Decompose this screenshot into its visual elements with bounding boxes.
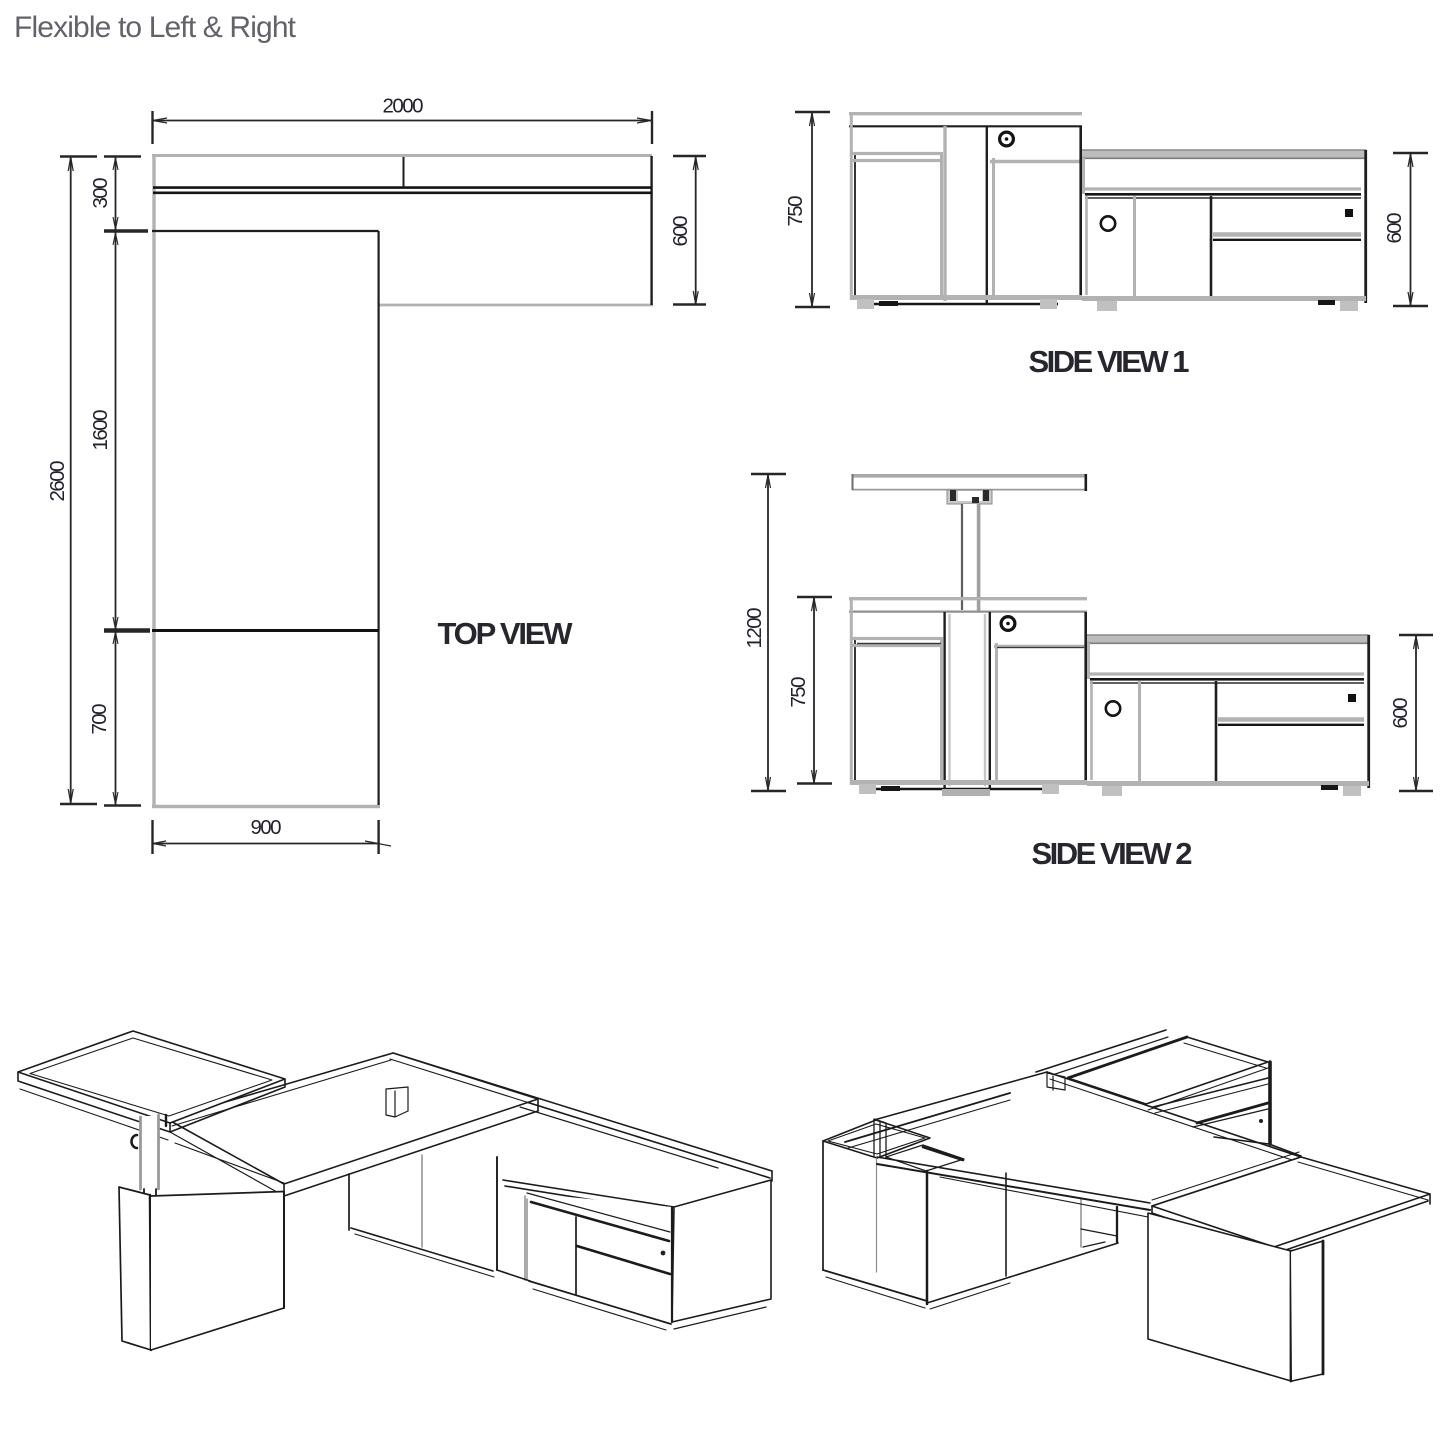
svg-text:600: 600 [1383,213,1406,244]
svg-text:900: 900 [251,816,282,839]
svg-text:2000: 2000 [383,95,424,118]
svg-text:1200: 1200 [743,608,766,649]
svg-text:Flexible to Left & Right: Flexible to Left & Right [14,11,297,44]
svg-text:SIDE VIEW 2: SIDE VIEW 2 [1032,836,1193,871]
svg-text:750: 750 [784,196,807,227]
svg-text:2600: 2600 [46,461,69,502]
svg-text:TOP VIEW: TOP VIEW [438,616,574,651]
svg-text:750: 750 [787,677,810,708]
svg-text:1600: 1600 [89,410,112,451]
svg-text:SIDE VIEW 1: SIDE VIEW 1 [1029,344,1190,379]
svg-text:700: 700 [88,704,111,735]
svg-text:600: 600 [1389,698,1412,729]
svg-text:300: 300 [89,178,112,209]
svg-text:600: 600 [669,216,692,247]
